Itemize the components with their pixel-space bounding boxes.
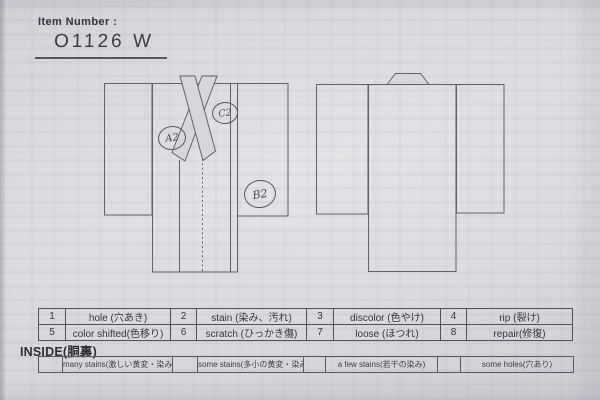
defect-code: 4 <box>441 309 467 325</box>
defect-code: 1 <box>39 309 66 325</box>
inside-option-label: some stains(多小の黄変・染み) <box>198 357 304 373</box>
defect-code: 3 <box>307 309 334 325</box>
document-photo: Item Number : O1126 W A2 C2 B2 <box>0 0 600 400</box>
table-row: 5 color shifted(色移り) 6 scratch (ひっかき傷) 7… <box>39 325 573 341</box>
inside-option-label: many stains(激しい黄変・染み) <box>63 357 173 373</box>
defect-legend-table: 1 hole (穴あき) 2 stain (染み、汚れ) 3 discolor … <box>38 308 573 341</box>
front-left-sleeve <box>105 84 153 216</box>
defect-label: repair(修復) <box>467 325 573 341</box>
inside-checkbox-cell <box>438 357 461 373</box>
defect-label: rip (裂け) <box>467 309 573 325</box>
inside-condition-table: many stains(激しい黄変・染み) some stains(多小の黄変・… <box>38 356 574 373</box>
defect-label: stain (染み、汚れ) <box>197 309 307 325</box>
kimono-front-diagram <box>105 76 289 272</box>
back-neckband <box>387 74 429 85</box>
back-right-sleeve <box>457 85 505 214</box>
defect-label: hole (穴あき) <box>66 309 171 325</box>
annotation-label: C2 <box>218 107 232 119</box>
defect-code: 6 <box>171 325 197 341</box>
inside-option-label: a few stains(若干の染み) <box>326 357 438 373</box>
back-body <box>369 85 457 272</box>
defect-code: 7 <box>307 325 334 341</box>
defect-code: 8 <box>441 325 467 341</box>
inside-checkbox-cell <box>39 357 63 373</box>
back-left-sleeve <box>317 85 369 215</box>
inside-option-label: some holes(穴あり) <box>461 357 574 373</box>
defect-label: discolor (色やけ) <box>334 309 441 325</box>
defect-label: color shifted(色移り) <box>66 325 171 341</box>
inside-checkbox-cell <box>173 357 198 373</box>
defect-code: 2 <box>171 309 197 325</box>
kimono-back-diagram <box>317 74 505 272</box>
inside-checkbox-cell <box>304 357 326 373</box>
defect-label: loose (ほつれ) <box>334 325 441 341</box>
table-row: many stains(激しい黄変・染み) some stains(多小の黄変・… <box>39 357 574 373</box>
defect-code: 5 <box>39 325 66 341</box>
annotation-label: A2 <box>165 132 180 145</box>
table-row: 1 hole (穴あき) 2 stain (染み、汚れ) 3 discolor … <box>39 309 573 325</box>
defect-label: scratch (ひっかき傷) <box>197 325 307 341</box>
annotation-label: B2 <box>252 186 269 201</box>
